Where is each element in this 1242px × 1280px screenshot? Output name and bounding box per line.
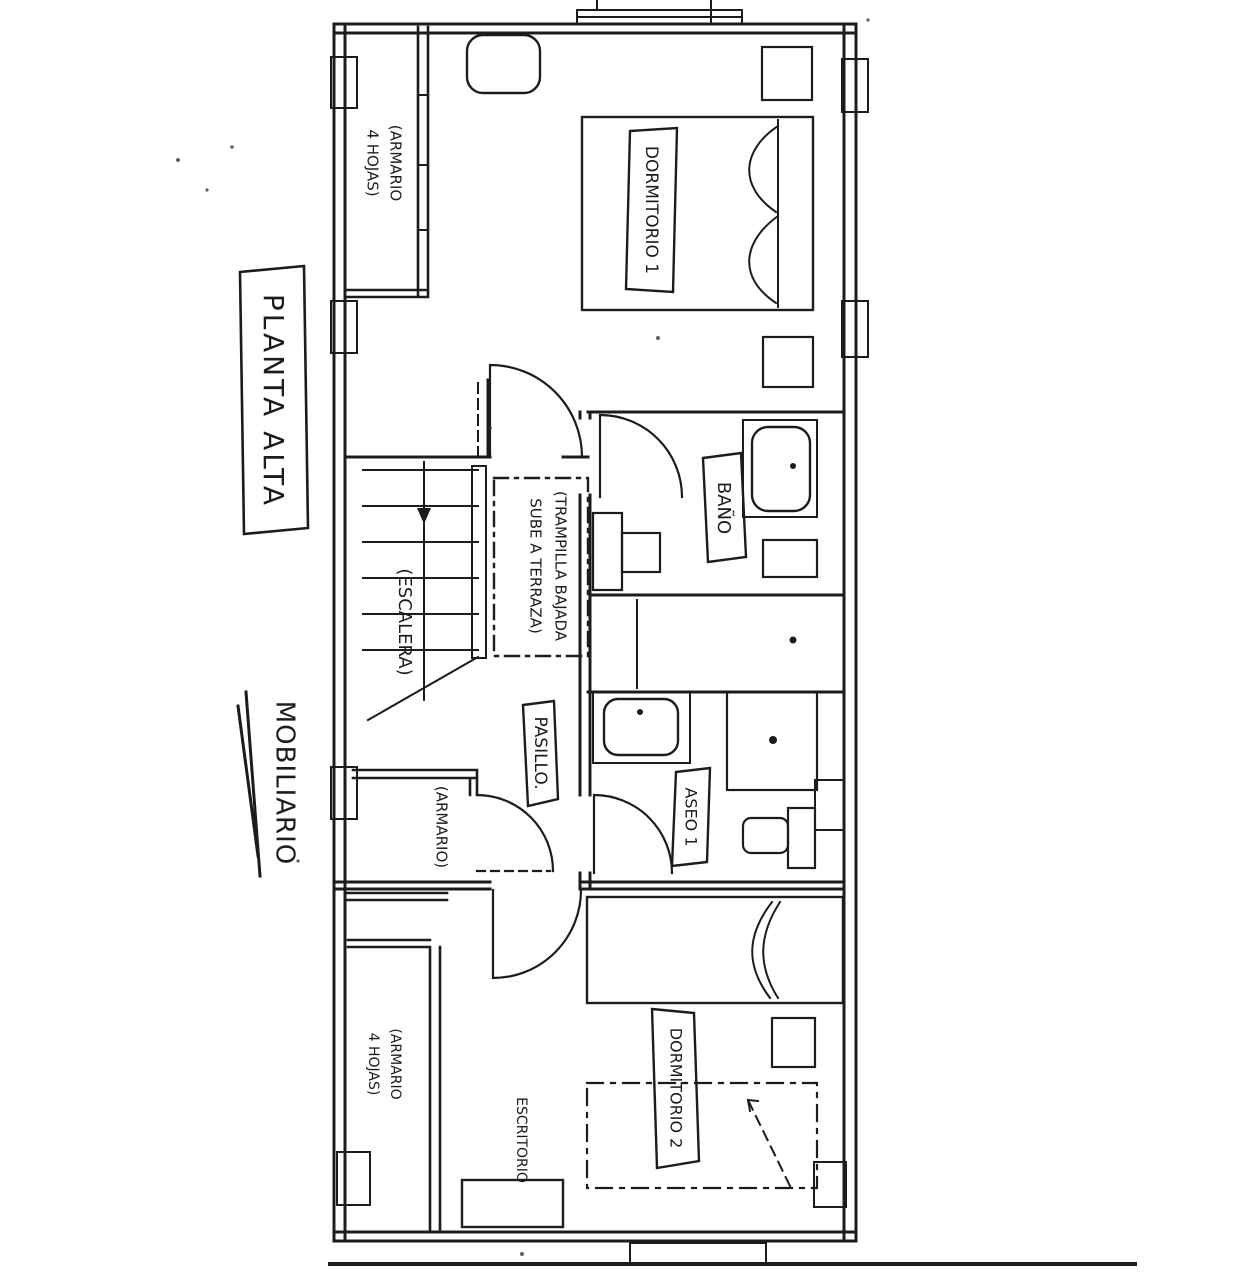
bed-pillow-icon	[752, 902, 780, 998]
escritorio-label: ESCRITORIO	[513, 1097, 529, 1183]
floor-plan-drawing: PLANTA ALTA MOBILIARIO	[0, 0, 1242, 1280]
ceiling-slope-outline	[587, 1083, 817, 1188]
door-armario-icon	[477, 795, 553, 871]
fixture-dot	[790, 637, 797, 644]
dormitorio-1: (ARMARIO 4 HOJAS) DORMITORIO 1	[345, 27, 813, 387]
stair-direction-arrow-icon	[417, 508, 431, 524]
door-aseo-icon	[594, 795, 672, 873]
aseo-1: ASEO 1	[593, 692, 817, 868]
trampilla-terraza: (TRAMPILLA BAJADA SUBE A TERRAZA)	[494, 478, 588, 656]
armario-pasillo-label: (ARMARIO)	[433, 786, 451, 868]
bano-label: BAÑO	[713, 482, 735, 534]
drain-dot	[769, 736, 777, 744]
small-tub-icon	[604, 699, 678, 755]
drain-dot	[637, 709, 643, 715]
armario-pasillo: (ARMARIO)	[353, 770, 477, 868]
pasillo-label: PASILLO.	[530, 716, 550, 789]
pier-icon	[814, 1162, 846, 1207]
dormitorio1-label: DORMITORIO 1	[641, 146, 661, 274]
legend-title: MOBILIARIO	[270, 701, 300, 866]
aseo-label: ASEO 1	[682, 787, 701, 846]
single-bed-icon	[587, 897, 843, 1003]
nightstand-icon	[772, 1018, 815, 1067]
bano: BAÑO	[593, 420, 817, 644]
toilet-bowl-icon	[743, 818, 788, 853]
desk-icon	[462, 1180, 563, 1227]
legend-underline	[238, 692, 260, 876]
slope-arrow	[748, 1100, 790, 1186]
armario-dorm2-label-line1: (ARMARIO	[387, 1028, 403, 1099]
nightstand-icon	[763, 337, 813, 387]
armchair-icon	[467, 35, 540, 93]
door-bano-icon	[600, 415, 682, 497]
plan-title: PLANTA ALTA	[257, 294, 290, 508]
door-dormitorio2-icon	[493, 890, 581, 978]
dormitorio-2: DORMITORIO 2 ESCRITORIO (ARMARIO 4 HOJAS…	[347, 893, 843, 1232]
armario-dorm1-label-line1: (ARMARIO	[387, 125, 405, 201]
staircase: (ESCALERA)	[363, 462, 486, 720]
bottom-window	[630, 1243, 766, 1263]
armario-dorm1-label-line2: 4 HOJAS)	[364, 129, 382, 196]
trampilla-label-line1: (TRAMPILLA BAJADA	[552, 491, 570, 642]
closet-door-ticks	[418, 95, 428, 230]
door-dormitorio1-icon	[490, 365, 582, 457]
armario-dorm2-label-line2: 4 HOJAS)	[365, 1033, 381, 1096]
title-block: PLANTA ALTA MOBILIARIO	[238, 266, 308, 876]
pier-icon	[337, 1152, 370, 1205]
sink-basin-icon	[622, 533, 660, 572]
scanned-floor-plan-page: PLANTA ALTA MOBILIARIO	[0, 0, 1242, 1280]
pasillo: PASILLO.	[523, 701, 558, 806]
sink-counter-icon	[593, 513, 622, 590]
toilet-tank-icon	[788, 808, 815, 868]
bidet-icon	[763, 540, 817, 577]
escalera-label: (ESCALERA)	[394, 568, 415, 675]
bathtub-icon	[752, 427, 810, 511]
outer-walls	[330, 0, 1135, 1264]
pier-icon	[815, 780, 844, 830]
top-window-ticks	[577, 0, 742, 24]
dormitorio2-label: DORMITORIO 2	[667, 1028, 686, 1149]
stair-railing	[472, 466, 486, 658]
bed-pillows-icon	[749, 120, 778, 307]
trampilla-label-line2: SUBE A TERRAZA)	[527, 498, 545, 634]
drain-dot	[790, 463, 796, 469]
nightstand-icon	[762, 47, 812, 100]
